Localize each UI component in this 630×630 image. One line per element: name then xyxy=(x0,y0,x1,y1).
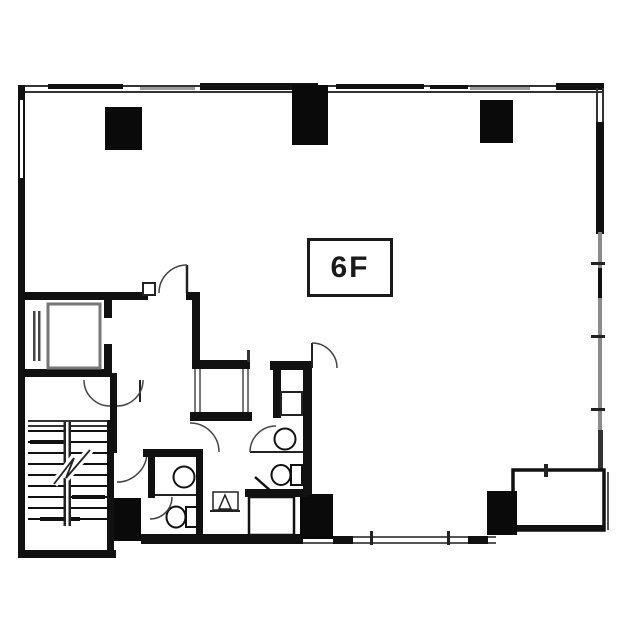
stair-tread-dark xyxy=(40,517,80,521)
pillar xyxy=(292,85,328,145)
top-wall-segment xyxy=(336,84,424,89)
door-tick xyxy=(544,464,548,477)
elevator-wall-bottom xyxy=(25,369,112,377)
pipe-shaft xyxy=(249,497,294,535)
elevator-rail xyxy=(33,311,36,361)
floor-plan-drawing xyxy=(0,0,630,630)
elevator-car xyxy=(48,304,100,368)
toilet-room-right xyxy=(245,343,337,497)
elevator-wall-right xyxy=(104,344,112,377)
door-swing-arc xyxy=(84,380,110,406)
elevator xyxy=(25,292,112,377)
pillar xyxy=(105,107,142,150)
duct-room-wall-bottom xyxy=(190,412,252,421)
door-swing-arc xyxy=(250,426,276,452)
top-wall-segment xyxy=(48,84,123,89)
counter xyxy=(281,392,302,415)
window-tick xyxy=(591,262,605,265)
hall-wall-vertical xyxy=(192,298,200,368)
wc-wall-right xyxy=(303,361,312,495)
door-swing-arc xyxy=(159,265,187,293)
right-wall-segment xyxy=(596,122,604,234)
room-outline xyxy=(513,470,604,530)
pillar xyxy=(480,100,513,143)
door-stop xyxy=(143,283,155,295)
sink-icon xyxy=(174,467,195,488)
window-tick xyxy=(591,408,605,411)
toilet-room-left xyxy=(143,449,203,538)
bottom-wall-segment xyxy=(333,536,353,544)
pillar xyxy=(113,498,141,541)
stair-tread-dark xyxy=(72,495,105,499)
top-wall-segment xyxy=(140,87,195,90)
pillar xyxy=(300,494,333,539)
floor-plan-page: 6F xyxy=(0,0,630,630)
wc-wall-left xyxy=(273,361,281,418)
floor-label-box: 6F xyxy=(307,238,393,297)
stair-wall-right xyxy=(107,420,114,553)
pillar xyxy=(487,491,517,535)
door-swing-arc xyxy=(190,423,219,452)
elevator-wall-right xyxy=(104,292,112,318)
top-wall-segment xyxy=(470,87,530,90)
right-wall-segment xyxy=(598,430,603,472)
elevator-wall-top xyxy=(25,292,112,300)
window-tick xyxy=(370,531,373,545)
toilet-tank-icon xyxy=(186,507,197,527)
stair-tread-dark xyxy=(30,440,65,444)
door-swing-arc xyxy=(117,452,147,482)
elevator-rail xyxy=(38,311,41,361)
right-wall-segment xyxy=(598,268,602,298)
bottom-right-room xyxy=(512,464,608,531)
left-wall-inner-gap xyxy=(20,100,23,178)
door-swing-arc xyxy=(312,343,337,368)
toilet-tank-icon xyxy=(291,465,302,485)
toilet-bowl-icon xyxy=(272,465,291,485)
wc-wall-left xyxy=(148,452,155,498)
staircase xyxy=(18,420,116,558)
toilet-bowl-icon xyxy=(167,507,186,528)
sink-icon xyxy=(275,429,296,450)
stair-wall-bottom xyxy=(18,550,116,558)
wall-tick xyxy=(247,350,250,362)
room-bottom-wall xyxy=(512,525,605,531)
floor-label-text: 6F xyxy=(330,251,369,285)
top-wall-segment xyxy=(430,85,468,89)
duct-room-wall-top xyxy=(192,360,250,369)
window-tick xyxy=(591,335,605,338)
urinal xyxy=(210,492,240,511)
bottom-wall-segment xyxy=(468,536,488,544)
window-tick xyxy=(447,531,450,545)
